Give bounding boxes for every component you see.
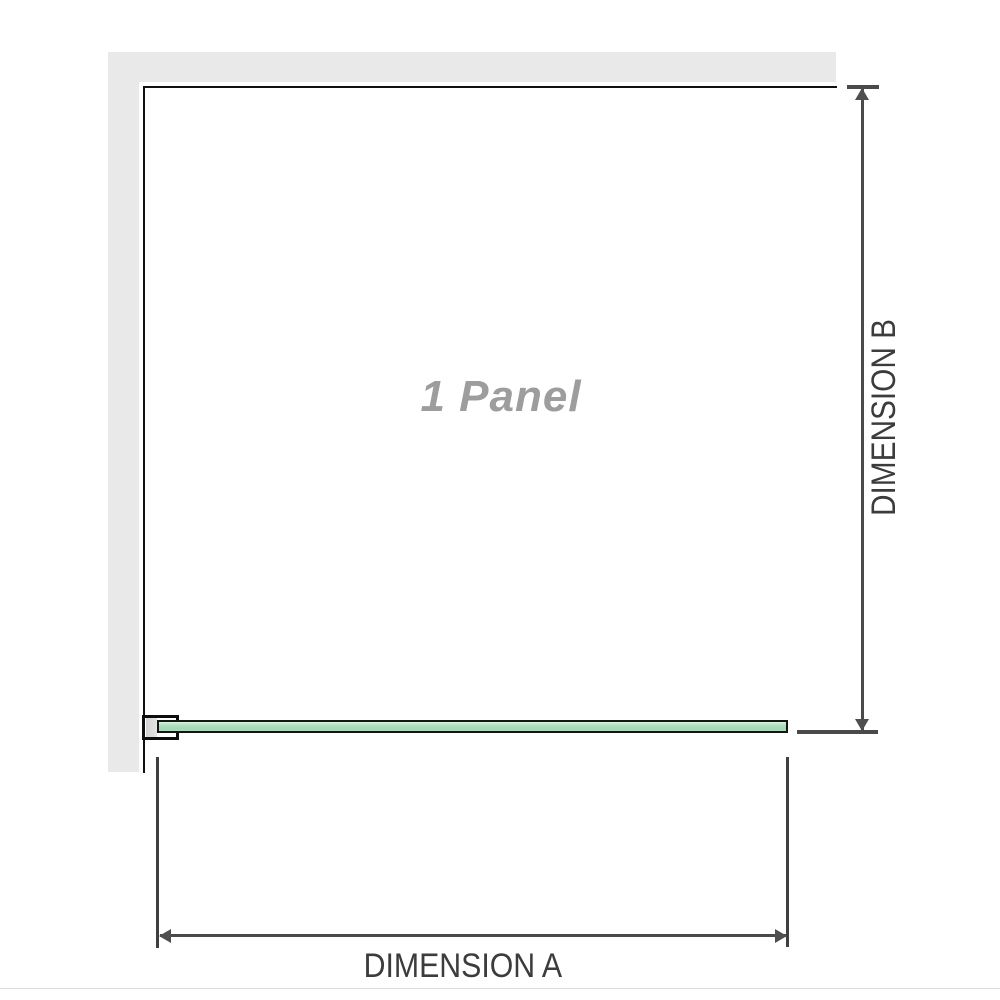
svg-text:DIMENSION A: DIMENSION A: [364, 947, 563, 985]
svg-text:DIMENSION B: DIMENSION B: [865, 319, 903, 516]
